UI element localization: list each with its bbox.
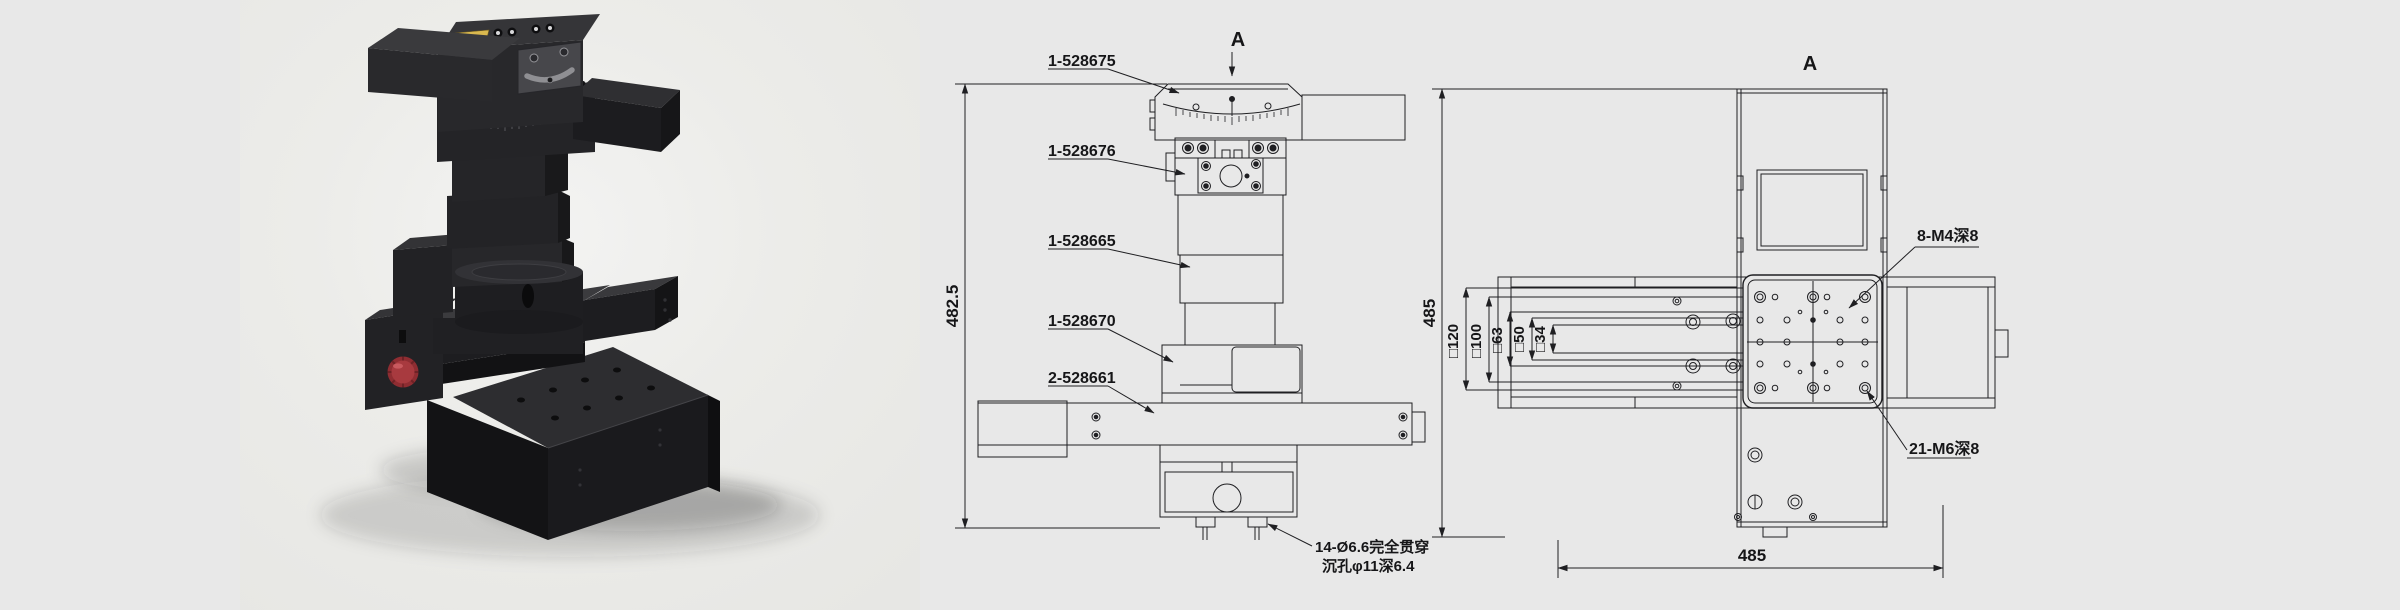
section-arrow-label: A [1231,29,1245,51]
height-dim-text: 482.5 [943,285,962,328]
part-label-2: 1-528676 [1048,143,1116,160]
square-dim-50: □50 [1511,326,1528,352]
z-column-outline [1178,195,1283,345]
thread-note-bottom: 21-M6深8 [1867,391,1979,458]
goniometer-outline [1150,84,1405,140]
rotation-stage-outline [1166,138,1286,195]
square-dim-34: □34 [1532,325,1549,351]
horizontal-485-dimension: 485 [1558,505,1943,578]
bottom-stage-outline [1160,445,1297,540]
arc-slot-plate [518,42,581,94]
thread-note-top-text: 8-M4深8 [1917,226,1978,245]
product-photo [240,0,920,610]
part-label-4: 1-528670 [1048,313,1116,330]
horizontal-485-text: 485 [1738,546,1766,565]
vertical-485-text: 485 [1420,299,1439,327]
top-view-drawing: A 485 □120 □100 □63 □50 □34 [1415,0,2400,610]
square-dim-120: □120 [1445,324,1462,358]
hole-note: 14-Ø6.6完全贯穿 沉孔φ11深6.4 [1268,524,1429,575]
part-label-5: 2-528661 [1048,370,1116,387]
platform-outline [1743,275,1882,408]
right-extension-block [573,78,680,152]
bottom-arm-details [1735,448,1888,537]
rotation-ring-top [455,260,583,284]
section-arrow: A [1231,29,1245,76]
part-label-3: 1-528665 [1048,233,1116,250]
hole-note-line1: 14-Ø6.6完全贯穿 [1315,538,1429,556]
lower-block-outline [1162,345,1302,403]
part-label-1: 1-528675 [1048,53,1116,70]
red-adjust-knob [388,357,419,388]
square-dim-100: □100 [1468,324,1485,358]
hole-note-line2: 沉孔φ11深6.4 [1322,557,1415,575]
page: A 482.5 [0,0,2400,610]
thread-note-bottom-text: 21-M6深8 [1909,439,1979,458]
x-rail-outline [978,401,1425,457]
part-labels: 1-528675 1-528676 1-528665 1-528670 2-52… [1048,53,1190,413]
top-view-label: A [1803,53,1817,75]
front-view-drawing: A 482.5 [930,0,1460,610]
